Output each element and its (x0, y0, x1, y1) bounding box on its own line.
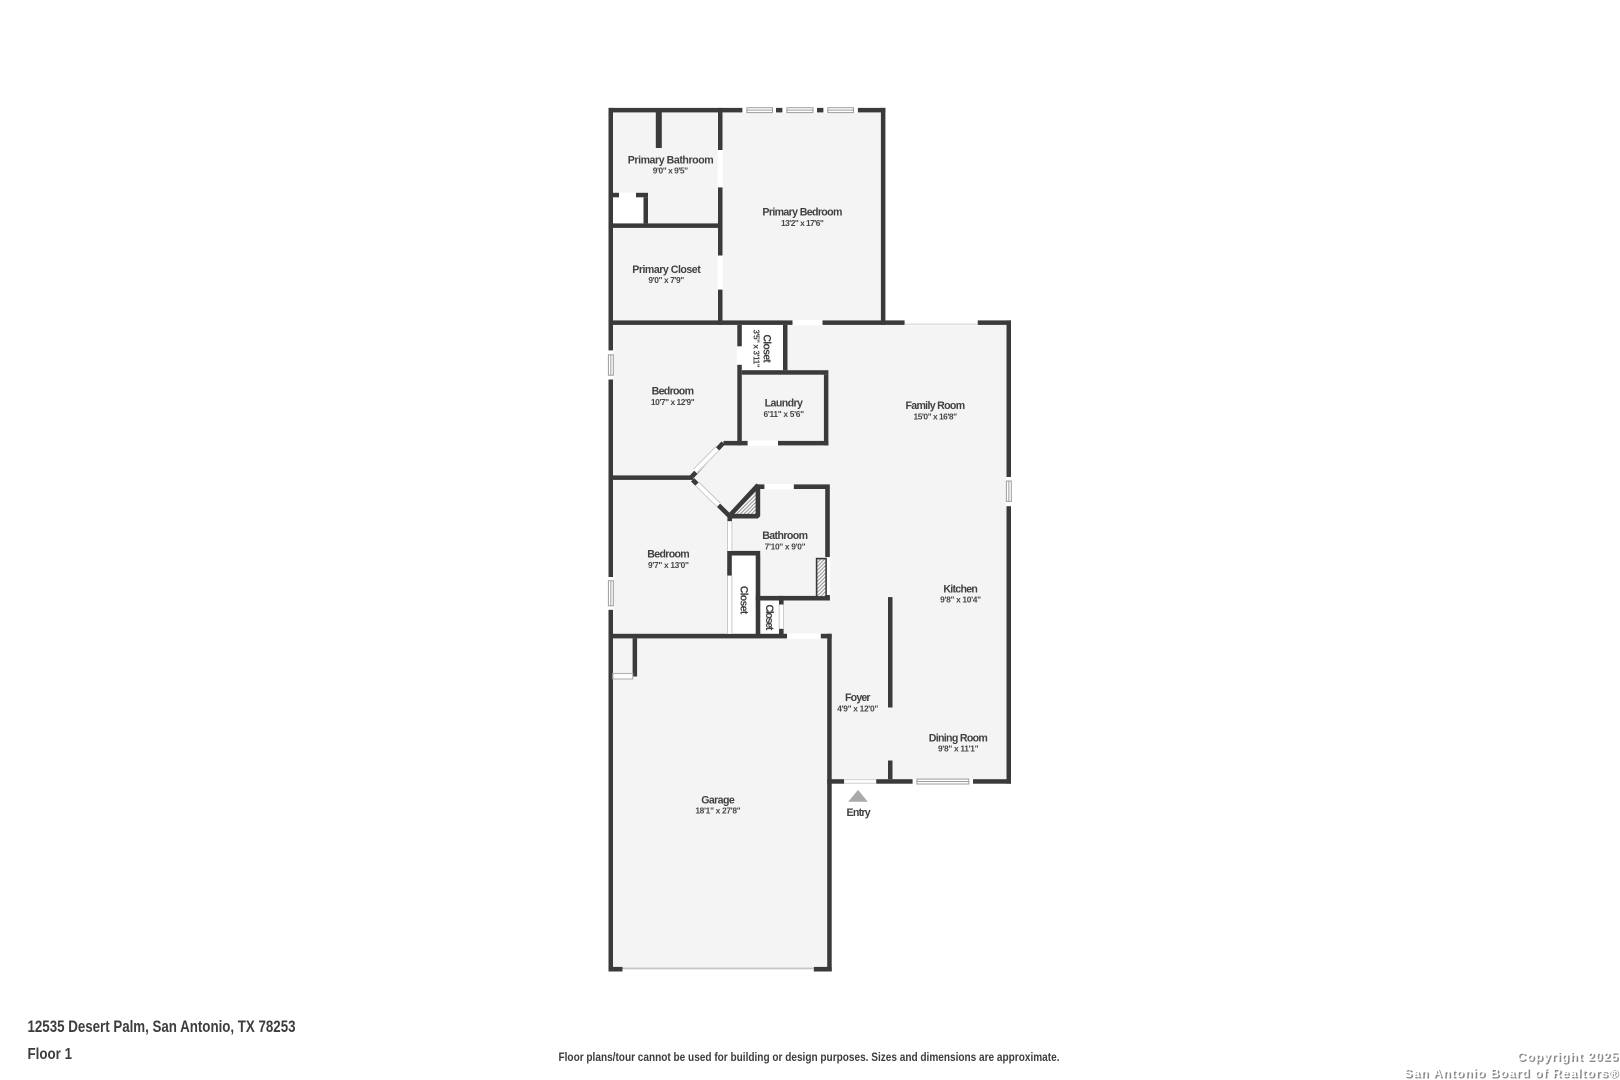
svg-text:6'11" x 5'6": 6'11" x 5'6" (764, 409, 805, 419)
svg-text:4'9" x 12'0": 4'9" x 12'0" (837, 703, 878, 713)
svg-text:Bedroom: Bedroom (652, 385, 694, 397)
svg-text:18'1" x 27'8": 18'1" x 27'8" (695, 806, 740, 816)
svg-text:9'8" x 11'1": 9'8" x 11'1" (938, 744, 979, 754)
svg-text:9'8" x 10'4": 9'8" x 10'4" (940, 595, 981, 605)
svg-text:13'2" x 17'6": 13'2" x 17'6" (781, 218, 824, 228)
svg-text:San Antonio Board of Realtors®: San Antonio Board of Realtors® (1404, 1066, 1618, 1080)
svg-text:Closet: Closet (738, 586, 750, 615)
svg-text:Family Room: Family Room (905, 400, 965, 412)
svg-text:15'0" x 16'8": 15'0" x 16'8" (914, 411, 958, 421)
svg-text:9'0" x 7'9": 9'0" x 7'9" (648, 275, 684, 285)
svg-text:Floor plans/tour cannot be use: Floor plans/tour cannot be used for buil… (559, 1050, 1060, 1064)
svg-text:7'10" x 9'0": 7'10" x 9'0" (765, 541, 806, 551)
svg-text:Garage: Garage (701, 794, 735, 806)
svg-text:Closet: Closet (763, 604, 775, 630)
svg-text:9'0" x 9'5": 9'0" x 9'5" (653, 166, 688, 176)
svg-text:Laundry: Laundry (765, 398, 803, 410)
svg-text:Kitchen: Kitchen (943, 583, 978, 595)
svg-text:Floor 1: Floor 1 (28, 1046, 73, 1063)
svg-text:3'5" x 3'11": 3'5" x 3'11" (751, 329, 761, 367)
svg-text:9'7" x 13'0": 9'7" x 13'0" (648, 560, 689, 570)
svg-text:Copyright 2025: Copyright 2025 (1517, 1049, 1618, 1063)
svg-text:Foyer: Foyer (845, 692, 871, 704)
svg-text:Bedroom: Bedroom (647, 549, 689, 561)
svg-text:Primary Bedroom: Primary Bedroom (762, 207, 842, 219)
svg-text:Entry: Entry (847, 807, 871, 819)
svg-text:12535 Desert Palm, San Antonio: 12535 Desert Palm, San Antonio, TX 78253 (28, 1018, 296, 1036)
svg-text:Dining Room: Dining Room (929, 732, 988, 744)
svg-text:Primary Bathroom: Primary Bathroom (628, 154, 714, 166)
svg-text:Bathroom: Bathroom (762, 530, 808, 542)
svg-text:10'7" x 12'9": 10'7" x 12'9" (651, 397, 695, 407)
